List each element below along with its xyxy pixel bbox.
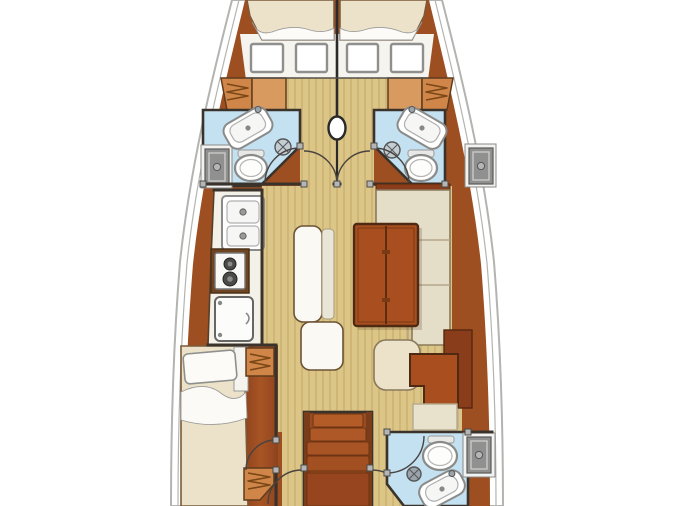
galley xyxy=(208,190,264,345)
bench-side-panel xyxy=(322,229,334,319)
aft-cabin-left xyxy=(181,345,278,506)
hatch-2 xyxy=(296,44,327,72)
hinge-block xyxy=(384,470,390,476)
drain xyxy=(475,451,482,458)
hinge-block xyxy=(367,181,373,187)
mast-symbol xyxy=(329,117,346,140)
hinge-block xyxy=(384,429,390,435)
aft-head-seat-top xyxy=(413,404,457,430)
hinge-block xyxy=(465,429,471,435)
locker-shelf-right xyxy=(388,78,422,110)
bench-cushion-short xyxy=(301,322,343,370)
hinge-block xyxy=(442,181,448,187)
hatch-3 xyxy=(347,44,378,72)
stair-step-2 xyxy=(310,428,366,441)
toilet-bowl xyxy=(240,160,262,177)
pillow xyxy=(183,350,237,384)
hatch-4 xyxy=(391,44,423,72)
bench-cushion-long xyxy=(294,226,322,322)
refrigerator-symbol xyxy=(215,297,253,341)
hinge-block xyxy=(367,465,373,471)
hinge-block xyxy=(301,465,307,471)
hinge-block xyxy=(301,181,307,187)
double-sink-symbol xyxy=(222,196,264,250)
toilet-bowl xyxy=(428,447,452,466)
toilet-bowl xyxy=(410,160,432,177)
drain xyxy=(477,162,484,169)
stair-landing xyxy=(307,473,369,506)
drain xyxy=(213,163,220,170)
folding-table xyxy=(354,224,422,330)
floor-plan-canvas xyxy=(0,0,675,506)
hinge-block xyxy=(273,467,279,473)
hinge-block xyxy=(371,143,377,149)
hinge-block xyxy=(297,143,303,149)
stair-step-3 xyxy=(307,442,369,455)
hinge-block xyxy=(273,437,279,443)
hinge-block xyxy=(334,181,340,187)
stove-symbol xyxy=(211,249,249,293)
hinge-block xyxy=(200,181,206,187)
locker-shelf-left xyxy=(252,78,286,110)
stair-step-1 xyxy=(313,414,363,427)
hatch-1 xyxy=(251,44,283,72)
stair-step-4 xyxy=(307,456,369,471)
